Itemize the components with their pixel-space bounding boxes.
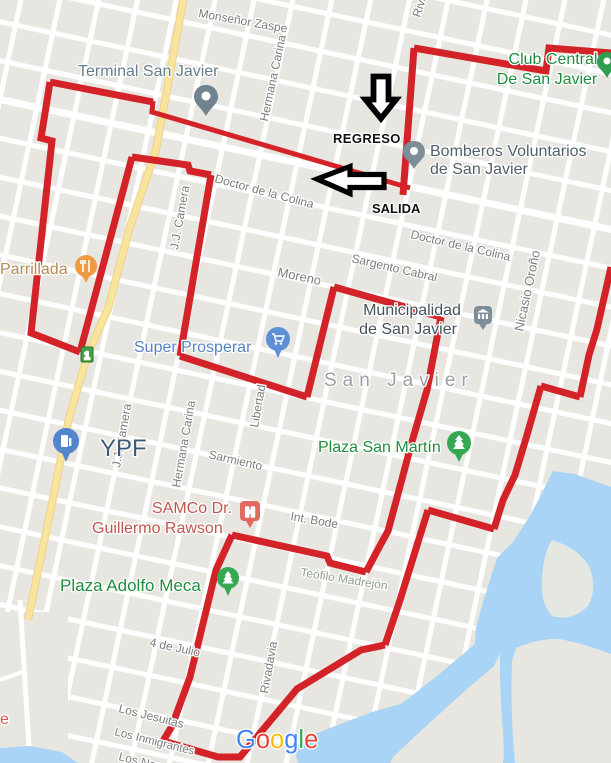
svg-text:H: H <box>245 505 254 520</box>
svg-text:Sarmiento: Sarmiento <box>207 447 264 473</box>
svg-text:Plaza San Martín: Plaza San Martín <box>318 439 441 456</box>
svg-text:J.J. Camera: J.J. Camera <box>167 184 192 250</box>
svg-text:Nicasio Oroño: Nicasio Oroño <box>511 249 543 333</box>
svg-text:De San Javier: De San Javier <box>497 71 598 88</box>
svg-text:YPF: YPF <box>100 435 147 462</box>
svg-text:Terminal San Javier: Terminal San Javier <box>78 63 219 80</box>
svg-text:Guillermo Rawson: Guillermo Rawson <box>92 520 223 537</box>
svg-text:Bomberos Voluntarios: Bomberos Voluntarios <box>430 143 587 160</box>
svg-text:Moreno: Moreno <box>276 264 322 288</box>
svg-text:SALIDA: SALIDA <box>372 201 421 216</box>
svg-text:Libertad: Libertad <box>247 383 268 428</box>
svg-text:1: 1 <box>84 351 90 362</box>
svg-text:Municipalidad: Municipalidad <box>363 302 461 319</box>
svg-text:Club Central: Club Central <box>509 51 598 68</box>
svg-text:Hermana Carina: Hermana Carina <box>169 399 198 488</box>
svg-text:Teófilo Madrejón: Teófilo Madrejón <box>300 565 389 593</box>
svg-text:Rivadavia: Rivadavia <box>410 0 440 19</box>
svg-text:4 de Julio: 4 de Julio <box>148 635 201 659</box>
svg-text:Int. Bode: Int. Bode <box>289 509 339 531</box>
svg-text:Doctor de la Colina: Doctor de la Colina <box>409 227 512 264</box>
svg-text:Doctor de la Colina: Doctor de la Colina <box>213 171 316 211</box>
svg-text:Parrillada: Parrillada <box>0 261 68 278</box>
svg-text:Monseñor Zaspe: Monseñor Zaspe <box>197 6 288 35</box>
svg-text:e: e <box>0 711 9 728</box>
svg-text:de San Javier: de San Javier <box>359 321 458 338</box>
svg-text:San Javier: San Javier <box>324 370 474 391</box>
svg-text:SAMCo Dr.: SAMCo Dr. <box>152 500 232 517</box>
svg-text:de San Javier: de San Javier <box>430 161 529 178</box>
svg-text:Google: Google <box>236 726 318 754</box>
svg-text:Super Prosperar: Super Prosperar <box>134 339 252 356</box>
svg-text:REGRESO: REGRESO <box>333 131 401 146</box>
svg-text:Los Jesuitas: Los Jesuitas <box>117 701 185 731</box>
svg-text:Sargento Cabral: Sargento Cabral <box>350 251 438 284</box>
svg-text:Rivadavia: Rivadavia <box>257 640 280 695</box>
svg-text:Plaza Adolfo Meca: Plaza Adolfo Meca <box>60 576 201 595</box>
svg-text:Hermana Carina: Hermana Carina <box>257 33 289 122</box>
